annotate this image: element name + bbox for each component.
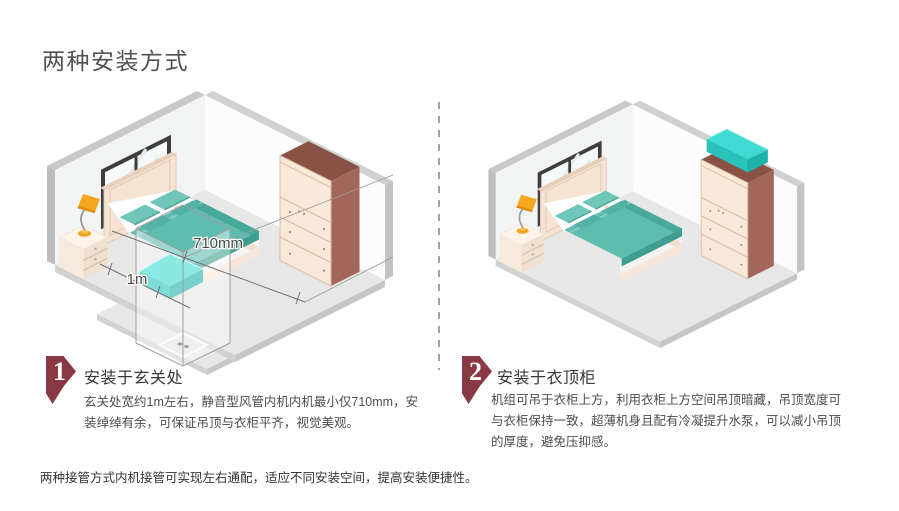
method-2-number-badge: 2 [462, 356, 492, 404]
method-2-description: 机组可吊于衣柜上方，利用衣柜上方空间吊顶暗藏，吊顶宽度可与衣柜保持一致，超薄机身… [491, 390, 847, 453]
dimension-label-1m: 1m [127, 271, 148, 288]
dimension-label-710mm: 710mm [193, 235, 243, 252]
wardrobe [280, 141, 360, 286]
method-1-number: 1 [53, 359, 66, 385]
left-room-illustration: 710mm 1m [40, 85, 432, 377]
method-2-number: 2 [469, 359, 482, 385]
right-room-illustration [482, 95, 840, 362]
infographic-canvas: 两种安装方式 [0, 0, 899, 511]
method-1-description: 玄关处宽约1m左右，静音型风管内机内机最小仅710mm，安装绰绰有余，可保证吊顶… [84, 392, 420, 434]
method-1-heading: 安装于玄关处 [84, 364, 183, 388]
footnote: 两种接管方式内机接管可实现左右通配，适应不同安装空间，提高安装便捷性。 [40, 467, 478, 486]
method-2-heading: 安装于衣顶柜 [497, 364, 596, 388]
page-title: 两种安装方式 [42, 42, 189, 76]
panel-divider-dashed-line [438, 102, 440, 370]
